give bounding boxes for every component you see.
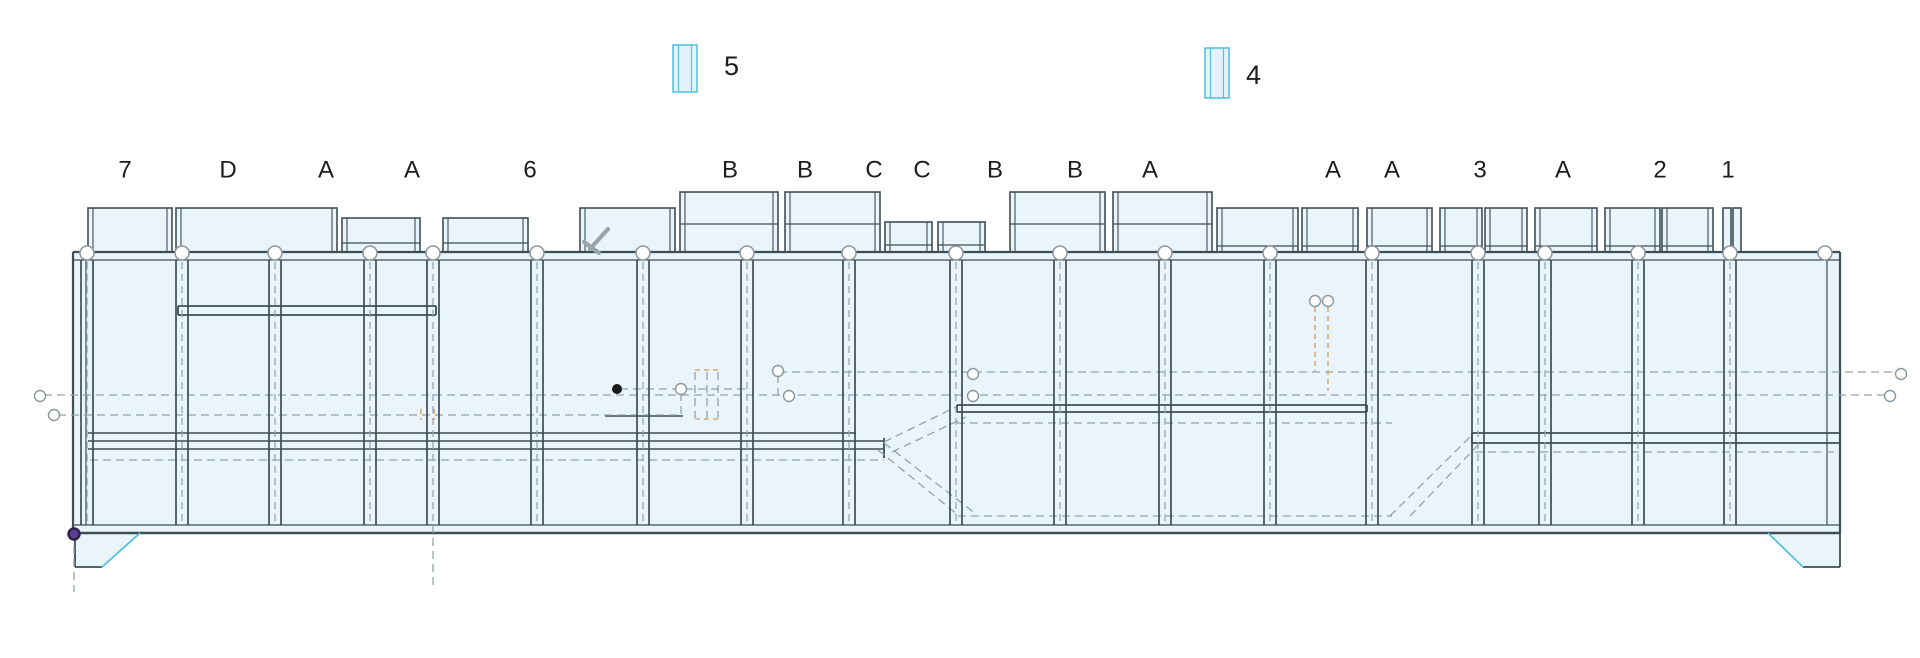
panel (1113, 192, 1212, 252)
joint-circle (740, 246, 754, 260)
grid-label: A (404, 156, 420, 183)
panel (1733, 208, 1741, 252)
grid-label: B (1067, 156, 1083, 183)
reference-circle (784, 391, 795, 402)
joint-circle (842, 246, 856, 260)
grid-label: B (797, 156, 813, 183)
grid-label: B (722, 156, 738, 183)
grid-label: A (1142, 156, 1158, 183)
grid-label: C (913, 156, 930, 183)
joint-circle (1538, 246, 1552, 260)
panel (785, 192, 880, 252)
black-point-marker[interactable] (612, 384, 622, 394)
grid-label: 6 (523, 156, 536, 183)
grid-label: B (987, 156, 1003, 183)
grid-label: A (1555, 156, 1571, 183)
reference-circle (676, 384, 687, 395)
panel (938, 222, 985, 252)
reference-circle (35, 391, 46, 402)
joint-circle (1631, 246, 1645, 260)
joint-circle (1818, 246, 1832, 260)
legend-label: 5 (724, 51, 739, 81)
legend-label: 4 (1246, 60, 1261, 90)
reference-circle (968, 391, 979, 402)
panel (88, 208, 172, 252)
joint-circle (1365, 246, 1379, 260)
panel (176, 208, 337, 252)
cad-canvas: 7DAA6BBCCBBAAA3A2154 (0, 0, 1920, 658)
grid-label: 1 (1721, 156, 1734, 183)
joint-circle (175, 246, 189, 260)
grid-label: C (865, 156, 882, 183)
joint-circle (426, 246, 440, 260)
joint-circle (530, 246, 544, 260)
grid-label: 7 (118, 156, 131, 183)
joint-circle (1723, 246, 1737, 260)
foot-right (1768, 533, 1840, 567)
reference-circle (1323, 296, 1334, 307)
panel (342, 218, 420, 252)
reference-circle (1310, 296, 1321, 307)
joint-circle (1053, 246, 1067, 260)
joint-circle (268, 246, 282, 260)
corner-grip-point[interactable] (69, 529, 80, 540)
legend-profile-box (673, 45, 697, 92)
joint-circle (80, 246, 94, 260)
panel (680, 192, 778, 252)
legend-profile-box (1205, 48, 1229, 98)
reference-circle (773, 366, 784, 377)
grid-label: 2 (1653, 156, 1666, 183)
joint-circle (1263, 246, 1277, 260)
joint-circle (1471, 246, 1485, 260)
grid-label: A (1384, 156, 1400, 183)
reference-circle (1885, 391, 1896, 402)
reference-circle (968, 369, 979, 380)
grid-label: D (219, 156, 236, 183)
grid-label: 3 (1473, 156, 1486, 183)
joint-circle (1158, 246, 1172, 260)
panel (885, 222, 932, 252)
grid-label: A (1325, 156, 1341, 183)
joint-circle (636, 246, 650, 260)
reference-circle (49, 410, 60, 421)
joint-circle (949, 246, 963, 260)
panel (1010, 192, 1105, 252)
panel (443, 218, 528, 252)
reference-circle (1896, 369, 1907, 380)
grid-label: A (318, 156, 334, 183)
joint-circle (363, 246, 377, 260)
drawing-svg: 7DAA6BBCCBBAAA3A2154 (0, 0, 1920, 658)
